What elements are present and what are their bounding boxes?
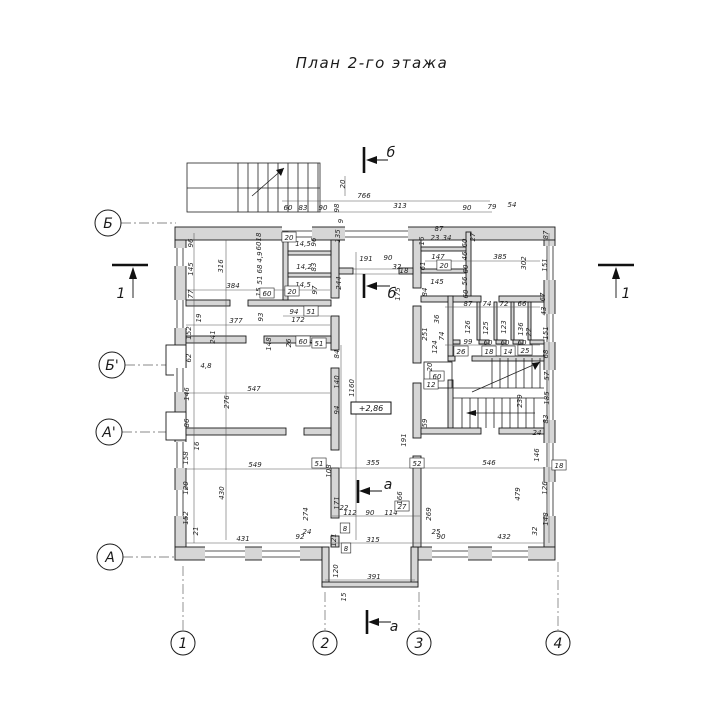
svg-text:3: 3 [415,636,424,652]
dimension-label: 60 [255,241,263,250]
dimension-label: 120 [182,481,190,495]
dimension-label: 20 [426,362,434,371]
dimension-label: 67 [539,292,547,301]
dimension-label: 20 [288,288,297,296]
dimension-label: 4,9 [256,251,264,263]
dimension-label: 87 [435,225,444,233]
dimension-label: 43 [540,307,548,316]
dimension-label: 60 [299,338,308,346]
dimension-label: 68 [542,349,550,358]
dimension-label: 86 [183,418,191,427]
dimension-label: 94 [333,406,341,415]
dimension-label: 276 [223,395,231,409]
section-marker-a-bottom: а [367,610,398,635]
dimension-label: 15 [340,592,348,601]
dimension-label: 479 [514,487,522,501]
dimension-label: 125 [482,321,490,335]
dimension-label: 355 [366,459,380,467]
dimension-label: 83 [542,415,550,424]
svg-text:А': А' [101,425,115,441]
dimension-label: 21 [192,527,200,536]
dimension-label: 36 [433,314,441,323]
dimension-label: 32 [531,526,539,535]
svg-text:4: 4 [554,636,563,652]
dimension-label: 124 [431,340,439,353]
dimension-label: 25 [521,347,530,355]
dimension-labels: 2076660839098313907954961457719152624,81… [182,179,566,601]
dimension-label: 547 [247,385,261,393]
dimension-label: 146 [533,448,541,462]
dimension-label: 59 [421,418,429,427]
dimension-label: 97 [311,285,319,294]
svg-text:А: А [104,550,115,566]
dimension-label: 96 [310,237,318,246]
dimension-label: 60 [461,238,469,247]
dimension-label: 191 [400,433,408,446]
dimension-label: 1160 [348,379,356,397]
dimension-label: 148 [542,512,550,526]
dimension-label: 166 [396,491,404,505]
section-marker-1-right: 1 [598,265,634,302]
dimension-label: 384 [226,282,239,290]
dimension-label: 191 [359,255,372,263]
dimension-label: 9 [337,218,345,223]
svg-text:1: 1 [179,636,188,652]
dimension-label: 302 [520,256,528,270]
svg-text:2: 2 [321,636,330,652]
dimension-label: 140 [333,375,341,389]
dimension-label: 34 [443,234,452,242]
dimension-label: 87 [464,300,473,308]
dimension-label: 51 [307,308,316,316]
section-label-b-mid: б [388,286,397,302]
dimension-label: 74 [438,332,446,341]
dimension-label: 99 [464,338,473,346]
dimension-label: 51 [256,276,264,285]
dimension-label: 126 [541,481,549,495]
axis-bubble-b: Б [95,210,121,236]
dimension-label: 12 [427,381,436,389]
dimension-label: 4,8 [200,362,212,370]
dimension-label: 98 [333,203,341,212]
section-marker-1-left: 1 [112,265,148,302]
dimension-label: 18 [485,348,494,356]
dimension-label: 172 [291,316,305,324]
dimension-label: 72 [500,300,509,308]
dimension-label: 135 [334,229,342,243]
dimension-label: 22 [525,327,533,336]
dimension-label: 26 [457,348,466,356]
dimension-label: 24 [533,429,542,437]
dimension-label: 90 [366,509,375,517]
dimension-label: 68 [256,264,264,273]
dimension-label: 83 [299,204,308,212]
dimension-label: 430 [218,486,226,500]
dimension-label: 239 [516,394,524,408]
dimension-label: 19 [195,313,203,322]
dimension-label: 8 [343,525,348,533]
axis-bubble-a: А [97,544,123,570]
dimension-label: 152 [185,326,193,340]
dimension-label: 377 [229,317,243,325]
dimension-label: 60 [284,204,293,212]
section-label-a-bottom: а [390,619,399,635]
dimension-label: 121 [330,533,338,546]
dimension-label: 14,5 [295,240,311,248]
dimension-label: 77 [187,289,195,298]
dimension-label: 60 [263,290,272,298]
elevation-value: +2,86 [359,404,384,413]
dimension-label: 54 [508,201,517,209]
dimension-label: 27 [469,232,477,241]
axis-bubble-a-prime: А' [96,419,122,445]
dimension-label: 61 [419,262,427,271]
dimension-label: 766 [357,192,371,200]
dimension-label: 120 [332,564,340,578]
dimension-label: 316 [217,259,225,273]
dimension-label: 23 [431,234,440,242]
axis-bubble-4: 4 [546,631,570,655]
section-label-b-top: б [387,145,396,161]
dimension-label: 90 [437,533,446,541]
dimension-label: 16 [193,441,201,450]
dimension-label: 20 [440,262,449,270]
dimension-label: 83 [310,263,318,272]
section-label-a-mid: а [384,477,393,493]
dimension-label: 431 [236,535,249,543]
dimension-label: 60 [462,264,470,273]
dimension-label: 74 [483,300,492,308]
dimension-label: 151 [541,258,549,271]
svg-text:Б': Б' [105,358,118,374]
dimension-label: 274 [302,507,310,520]
dimension-label: 26 [285,338,293,347]
dimension-label: 158 [182,451,190,465]
dimension-label: 52 [413,460,422,468]
dimension-label: 546 [482,459,496,467]
dimension-label: 315 [366,536,380,544]
dimension-label: 123 [500,320,508,333]
floor-plan-page: План 2-го этажа [0,0,725,703]
dimension-label: 84 [421,288,429,297]
dimension-label: 151 [542,326,550,339]
dimension-label: 8 [344,545,349,553]
dimension-label: 66 [518,300,527,308]
dimension-label: 90 [463,204,472,212]
svg-text:Б: Б [103,216,113,232]
dimension-label: 18 [400,267,409,275]
dimension-label: 549 [248,461,262,469]
dimension-label: 251 [421,327,429,340]
dimension-label: 60 [462,289,470,298]
dimension-label: 79 [488,203,497,211]
interior-thin-details [353,269,452,388]
dimension-label: 185 [543,391,551,405]
dimension-label: 18 [255,232,263,241]
section-label-1-left: 1 [117,286,126,302]
axis-bubble-b-prime: Б' [99,352,125,378]
dimension-label: 46 [461,251,469,260]
main-stair [453,358,544,428]
axis-bubble-2: 2 [313,631,337,655]
dimension-label: 145 [430,278,444,286]
dimension-label: 136 [517,322,525,336]
dimension-label: 96 [187,238,195,247]
dimension-label: 90 [384,254,393,262]
elevation-mark: +2,86 [351,402,391,414]
dimension-label: 108 [325,464,333,478]
dimension-label: 18 [555,462,564,470]
dimension-label: 94 [290,308,299,316]
dimension-label: 432 [497,533,511,541]
dimension-label: 87 [542,230,550,239]
section-label-1-right: 1 [622,286,631,302]
dimension-label: 56 [461,276,469,285]
dimension-label: 152 [182,511,190,525]
dimension-label: 148 [265,337,273,351]
axis-bubble-3: 3 [407,631,431,655]
dimension-label: 51 [315,340,324,348]
dimension-label: 126 [464,320,472,334]
dimension-label: 269 [425,507,433,521]
dimension-label: 93 [257,313,265,322]
dimension-label: 391 [367,573,380,581]
section-marker-b-mid: б [364,274,397,302]
dimension-label: 241 [209,330,217,343]
dimension-label: 62 [185,353,193,362]
dimension-label: 57 [543,371,551,380]
dimension-label: 90 [319,204,328,212]
dimension-label: 20 [339,179,347,188]
dimension-label: 112 [343,509,357,517]
drawing-title: План 2-го этажа [296,54,449,72]
section-marker-b-top: б [364,145,396,173]
dimension-label: 145 [187,262,195,276]
dimension-label: 14 [504,348,513,356]
dimension-label: 51 [315,460,324,468]
section-marker-a-mid: а [358,477,392,503]
dimension-label: 385 [493,253,507,261]
floor-plan-svg: План 2-го этажа [0,0,725,703]
dimension-label: 244 [335,276,343,289]
dimension-label: 84 [333,350,341,359]
dimension-label: 16 [418,236,426,245]
dimension-label: 24 [303,528,312,536]
dimension-label: 313 [393,202,406,210]
dimension-label: 146 [183,387,191,401]
axis-bubble-1: 1 [171,631,195,655]
dimension-label: 20 [285,234,294,242]
